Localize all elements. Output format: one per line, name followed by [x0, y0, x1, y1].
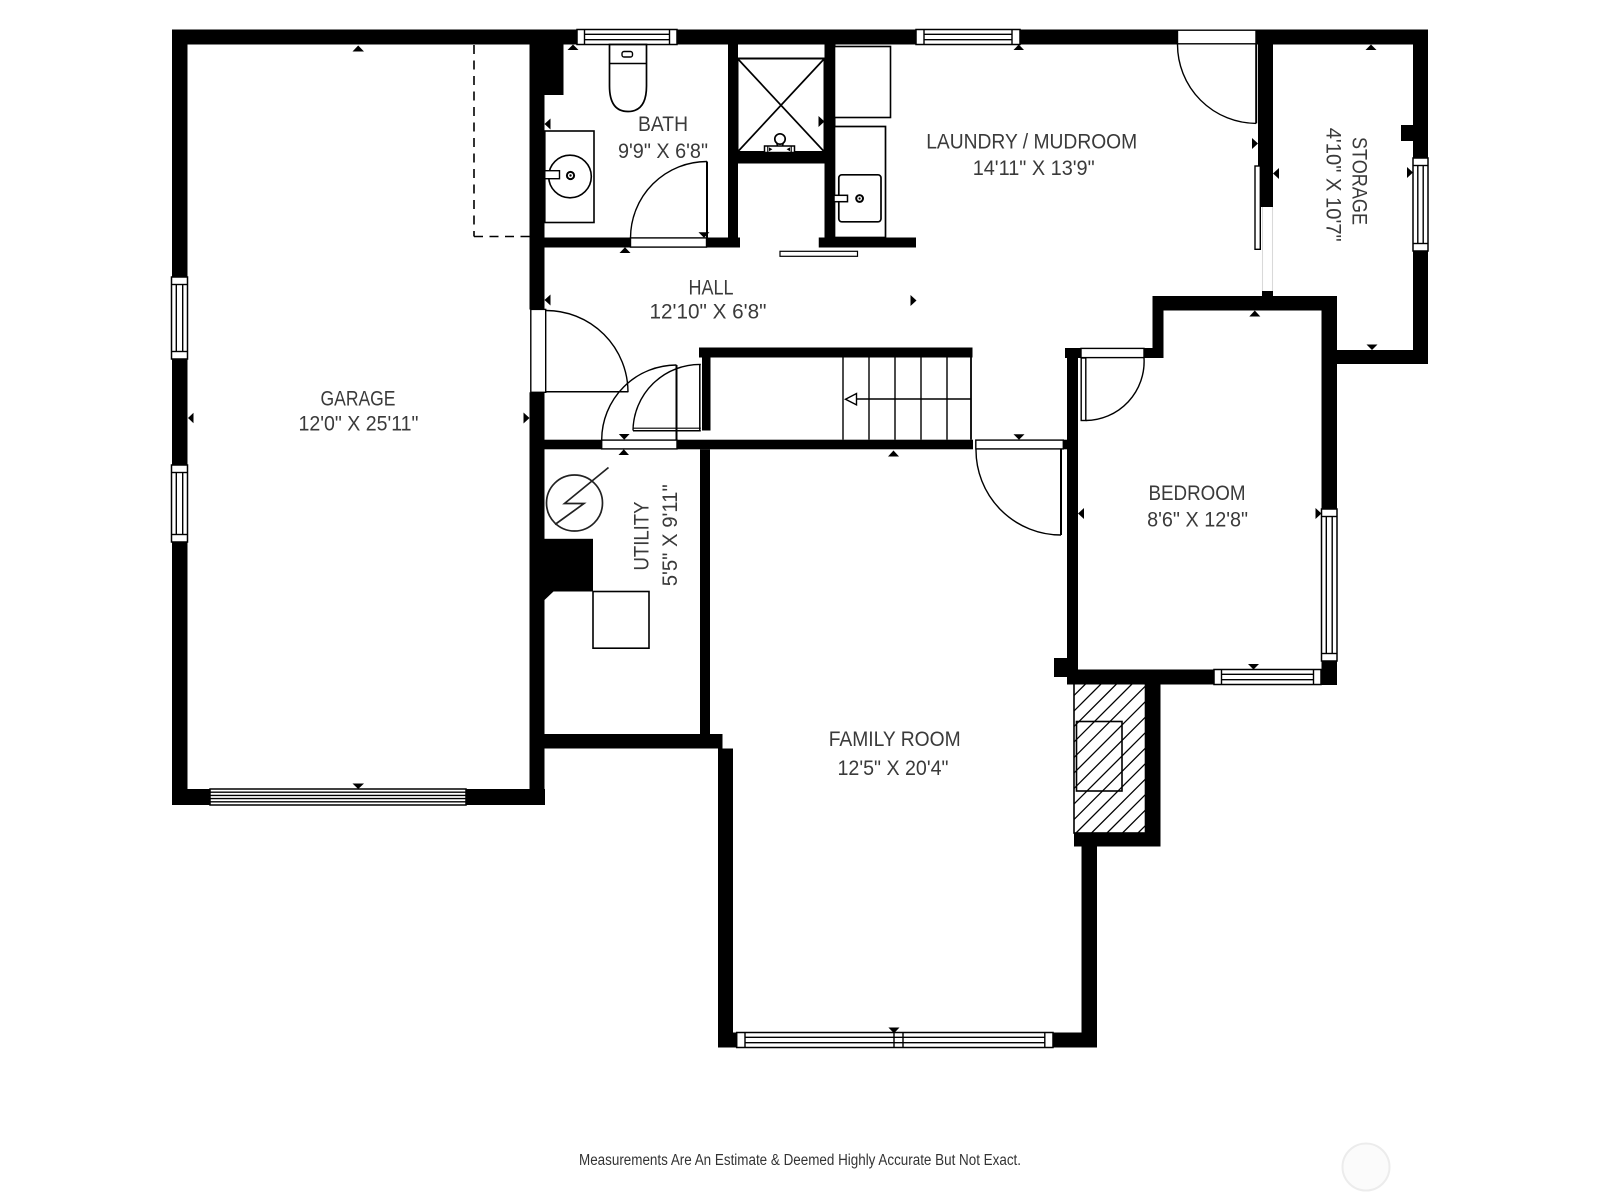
svg-text:4'10" X 10'7": 4'10" X 10'7" [1322, 128, 1345, 242]
svg-text:GARAGE: GARAGE [321, 388, 396, 411]
svg-text:12'10" X 6'8": 12'10" X 6'8" [650, 300, 767, 323]
svg-text:FAMILY ROOM: FAMILY ROOM [829, 728, 961, 751]
svg-text:STORAGE: STORAGE [1348, 137, 1371, 225]
svg-text:5'5" X 9'11": 5'5" X 9'11" [659, 484, 682, 586]
svg-text:8'6" X 12'8": 8'6" X 12'8" [1147, 508, 1248, 531]
svg-text:12'0" X 25'11": 12'0" X 25'11" [299, 413, 419, 436]
svg-text:LAUNDRY / MUDROOM: LAUNDRY / MUDROOM [926, 130, 1137, 153]
svg-text:9'9" X 6'8": 9'9" X 6'8" [618, 140, 708, 163]
svg-text:HALL: HALL [689, 277, 734, 300]
svg-text:BATH: BATH [638, 113, 688, 136]
svg-text:Measurements Are An Estimate &: Measurements Are An Estimate & Deemed Hi… [579, 1152, 1021, 1169]
svg-text:12'5" X 20'4": 12'5" X 20'4" [838, 757, 949, 780]
svg-text:BEDROOM: BEDROOM [1149, 482, 1246, 505]
svg-text:14'11" X 13'9": 14'11" X 13'9" [973, 157, 1095, 180]
svg-text:UTILITY: UTILITY [631, 502, 654, 571]
